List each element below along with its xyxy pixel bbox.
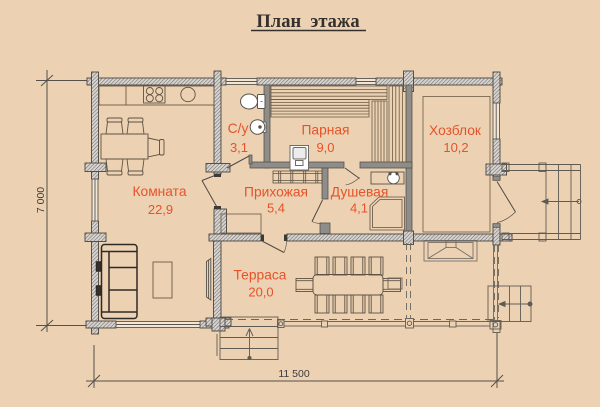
svg-text:4,1: 4,1 (350, 201, 368, 216)
svg-text:План этажа: План этажа (256, 12, 359, 32)
svg-text:С/у: С/у (228, 121, 249, 136)
svg-text:Прихожая: Прихожая (244, 185, 308, 200)
svg-text:10,2: 10,2 (443, 140, 468, 155)
svg-text:7 000: 7 000 (35, 187, 47, 213)
svg-text:11 500: 11 500 (278, 368, 309, 380)
svg-text:Хозблок: Хозблок (429, 123, 482, 138)
svg-text:22,9: 22,9 (148, 202, 173, 217)
svg-text:Душевая: Душевая (331, 185, 389, 200)
svg-text:Комната: Комната (132, 184, 186, 199)
svg-text:Парная: Парная (301, 123, 349, 138)
svg-text:20,0: 20,0 (248, 285, 273, 300)
svg-text:Терраса: Терраса (234, 268, 287, 283)
svg-text:3,1: 3,1 (230, 140, 248, 155)
svg-text:9,0: 9,0 (316, 140, 334, 155)
svg-text:5,4: 5,4 (267, 201, 285, 216)
